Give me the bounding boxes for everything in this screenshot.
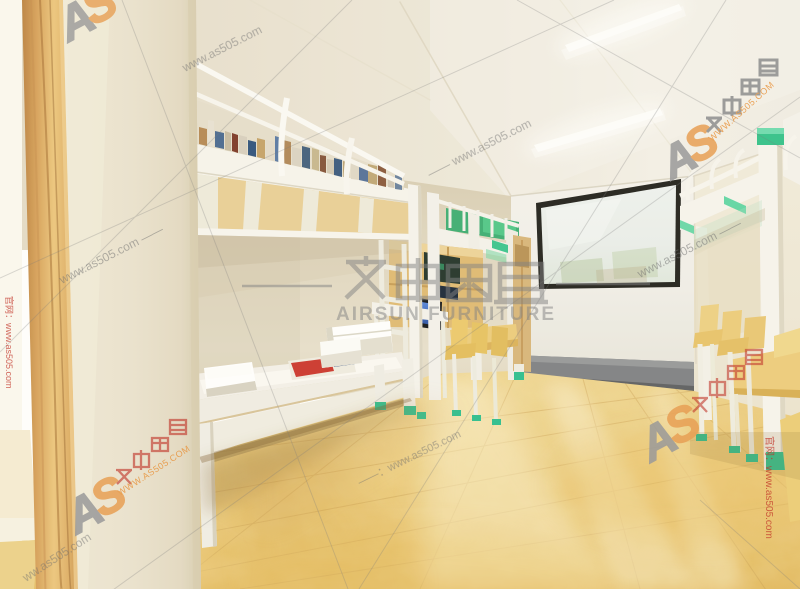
svg-text:官网：www.as505.com: 官网：www.as505.com: [4, 296, 15, 389]
svg-text:官网：www.as505.com: 官网：www.as505.com: [763, 436, 776, 539]
svg-text:AIRSUN FURNITURE: AIRSUN FURNITURE: [336, 304, 558, 325]
